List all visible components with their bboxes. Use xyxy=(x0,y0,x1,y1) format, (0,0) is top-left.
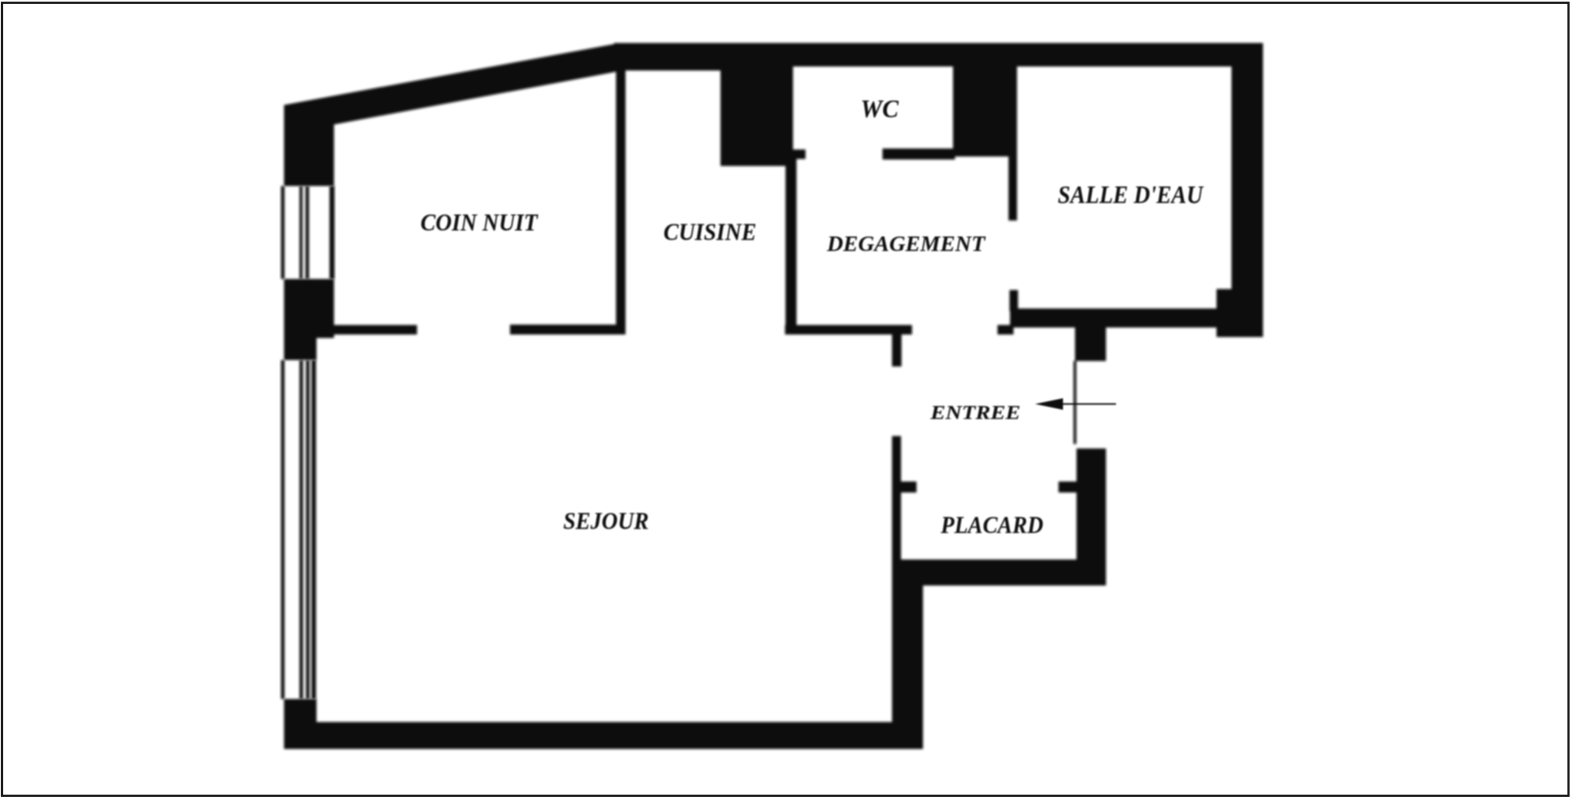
svg-text:COIN NUIT: COIN NUIT xyxy=(421,210,539,237)
svg-text:DEGAGEMENT: DEGAGEMENT xyxy=(826,231,986,256)
svg-text:SALLE D'EAU: SALLE D'EAU xyxy=(1058,182,1205,209)
svg-text:SEJOUR: SEJOUR xyxy=(563,508,649,535)
svg-text:CUISINE: CUISINE xyxy=(664,219,757,246)
svg-text:ENTREE: ENTREE xyxy=(929,403,1020,424)
svg-text:WC: WC xyxy=(861,96,899,123)
svg-text:PLACARD: PLACARD xyxy=(940,513,1043,539)
